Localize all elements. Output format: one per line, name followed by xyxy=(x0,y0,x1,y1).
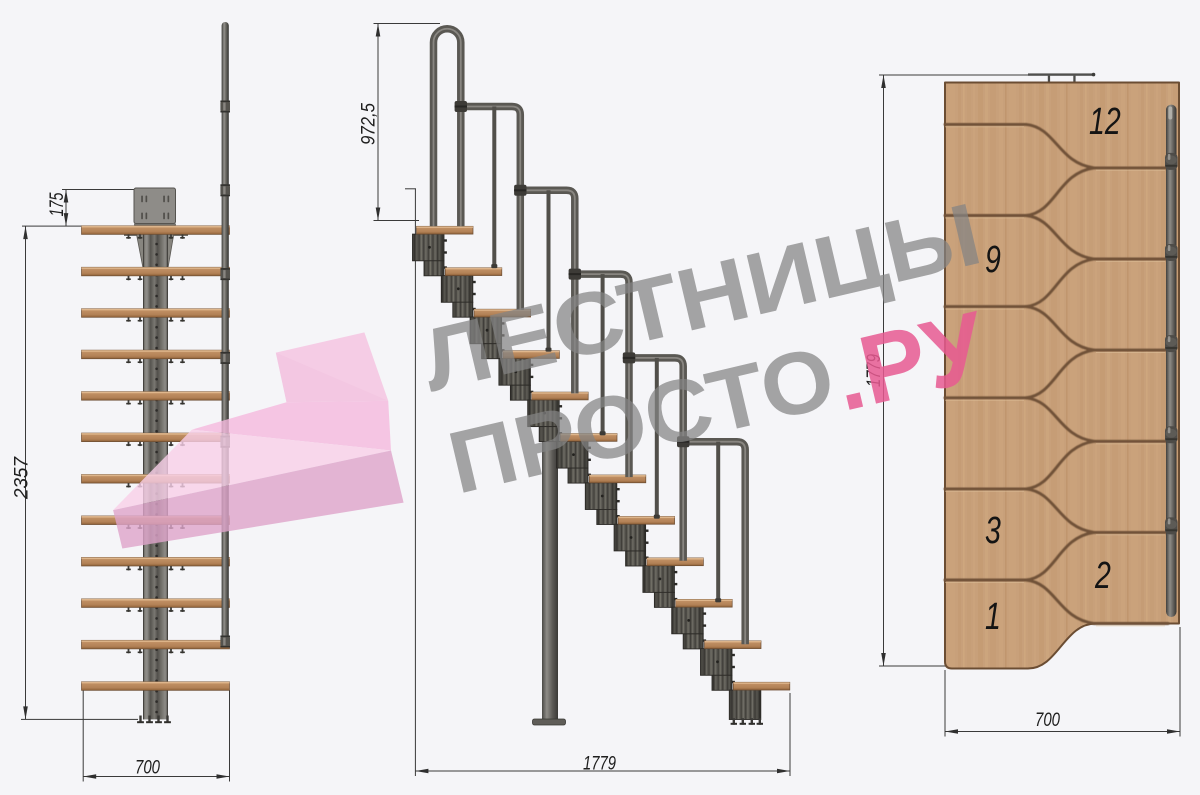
svg-text:2357: 2357 xyxy=(12,456,33,500)
svg-text:700: 700 xyxy=(135,758,160,779)
svg-text:1779: 1779 xyxy=(583,754,616,775)
svg-text:2: 2 xyxy=(1094,555,1111,597)
svg-text:1: 1 xyxy=(985,596,1001,638)
svg-text:175: 175 xyxy=(47,192,68,216)
svg-text:972,5: 972,5 xyxy=(359,103,380,145)
svg-text:12: 12 xyxy=(1089,101,1121,143)
svg-text:700: 700 xyxy=(1035,710,1060,731)
svg-text:3: 3 xyxy=(985,510,1001,552)
